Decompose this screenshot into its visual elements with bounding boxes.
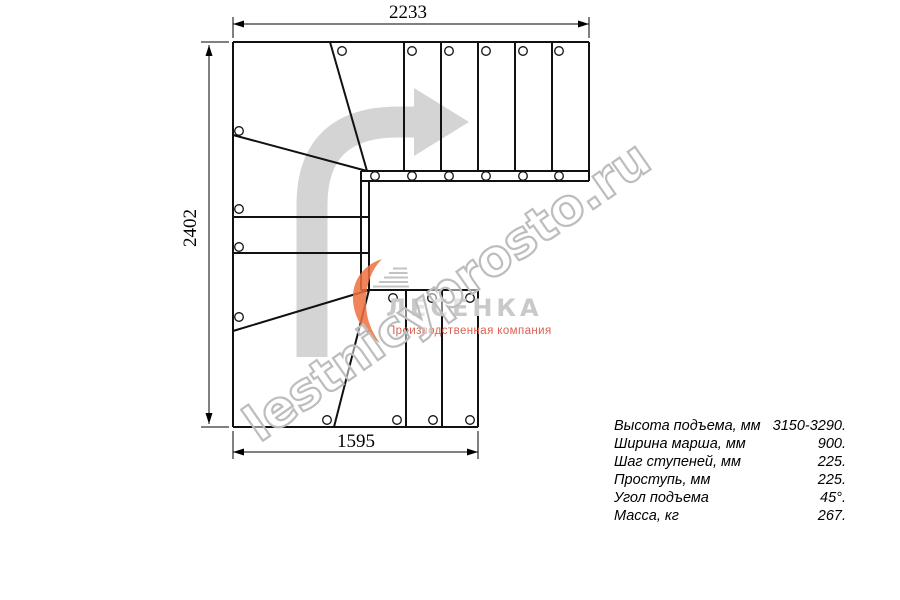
stair-treads [233,42,552,427]
dimension-bottom-label: 1595 [337,431,375,452]
spec-value: 900. [818,435,846,453]
spec-label: Высота подъема, мм [614,417,761,435]
spec-row-angle: Угол подъема 45°. [614,489,846,507]
spec-row-tread: Проступь, мм 225. [614,471,846,489]
spec-label: Масса, кг [614,507,679,525]
spec-table: Высота подъема, мм 3150-3290. Ширина мар… [614,417,846,525]
dimension-arrowheads [206,21,590,456]
spec-row-flight-width: Ширина марша, мм 900. [614,435,846,453]
logo-company-name: ЛЕСЕНКА [386,294,543,322]
spec-value: 225. [818,453,846,471]
dimension-top-label: 2233 [389,2,427,23]
logo-tagline: Производственная компания [387,325,552,337]
spec-label: Ширина марша, мм [614,435,746,453]
spec-row-step-pitch: Шаг ступеней, мм 225. [614,453,846,471]
spec-label: Шаг ступеней, мм [614,453,741,471]
stair-drawing-page: 2233 2402 1595 ЛЕСЕНКА Производственная … [0,0,900,600]
spec-value: 3150-3290. [773,417,846,435]
stair-plan-outline [233,42,589,427]
spec-value: 45°. [820,489,846,507]
spec-row-height: Высота подъема, мм 3150-3290. [614,417,846,435]
spec-row-mass: Масса, кг 267. [614,507,846,525]
dimension-lines [201,17,589,459]
spec-label: Проступь, мм [614,471,710,489]
spec-value: 225. [818,471,846,489]
logo-stairs-lines [373,269,409,287]
spec-label: Угол подъема [614,489,709,507]
dimension-left-label: 2402 [180,209,201,247]
spec-value: 267. [818,507,846,525]
